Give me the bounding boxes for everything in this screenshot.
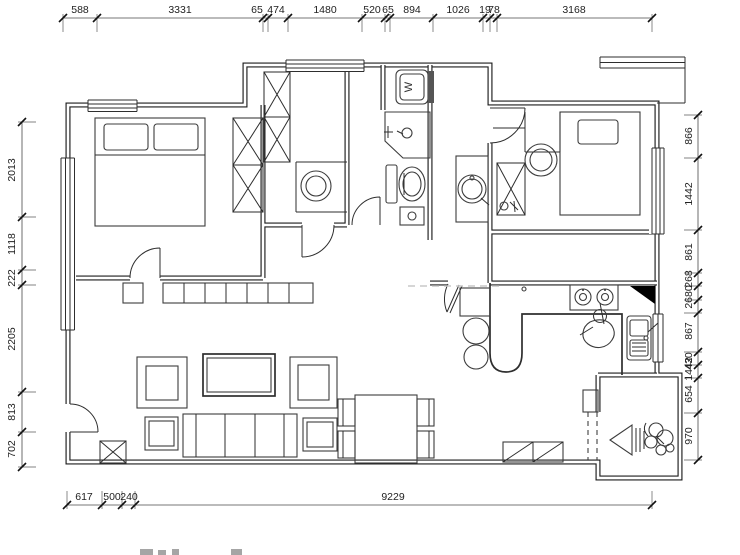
bay-window-top-right [600,57,685,103]
dimension-label: 861 [684,243,695,261]
window-study-top [286,58,364,72]
study-desk-chair-icon [301,171,331,201]
dimension-label: 617 [75,492,93,503]
dining-table-icon [355,395,417,463]
dimension-label: 1480 [313,5,336,16]
bathroom-sink-counter-icon [384,112,430,158]
dining-chair-icon [417,399,434,426]
washer-panel [428,71,434,103]
dimension-label: 2013 [7,158,18,181]
hall-basin-icon [456,156,489,222]
dimension-label: 1026 [446,5,469,16]
bedroom2-bed [560,112,640,215]
fridge-icon [460,288,490,316]
window-bedroom2-right [649,148,665,234]
dimension-label: 9229 [381,492,404,503]
bedroom1-door-arc [130,248,160,278]
dimension-label: 1442 [684,357,695,380]
dimension-label: 970 [684,427,695,445]
floorplan-canvas: W [0,0,740,555]
dimension-label: 588 [71,5,89,16]
pillow [154,124,198,150]
dimension-label: 500 [103,492,121,503]
dimension-label: 2680 [684,285,695,308]
bedroom2-door-arc [490,108,525,143]
dimension-label: 867 [684,322,695,340]
side-table-icon [303,418,337,451]
dimension-label: 240 [120,492,138,503]
pillow [104,124,148,150]
coffee-table-icon [203,354,275,396]
armchair-icon [290,357,337,408]
bedroom2-wardrobe-icon [497,163,525,215]
dimension-label: 654 [684,385,695,403]
cutoff-mark [172,549,179,555]
window-bedroom1-top [88,98,137,112]
bathroom-door-arc [352,197,380,225]
vent-pennant-icon [610,425,644,455]
cutoff-mark [140,549,153,555]
stove-icon [570,285,618,310]
interior-walls [68,65,657,412]
dimension-label: 474 [267,5,285,16]
window-kitchen-right [650,314,664,362]
dimension-label: 702 [7,440,18,458]
dimension-label: 3168 [562,5,585,16]
dimension-label: 866 [684,127,695,145]
window-left-wall [59,158,76,330]
armchair-icon [137,357,187,408]
dimension-label: 65 [382,5,394,16]
study-door-arc [302,225,334,257]
pillow [578,120,618,144]
dimension-label: 2205 [7,327,18,350]
bedroom1-bed [95,118,205,226]
dimension-label: 78 [488,5,500,16]
cutoff-mark [231,549,242,555]
kitchen-counter [490,283,622,375]
entry-door-arc [70,404,98,432]
floorplan-drawing: W [0,0,740,555]
door-stop [522,287,526,291]
study-wardrobe-icon [264,72,290,162]
dimension-label: 520 [363,5,381,16]
dining-chair-icon [417,431,434,458]
side-table-icon [145,417,178,450]
bathroom-pedestal-icon [400,207,424,225]
bedroom2-desk [493,112,560,152]
study-desk [296,162,347,212]
dimension-lines [18,14,702,509]
bar-stool-icon [463,318,489,344]
dimension-label: 894 [403,5,421,16]
dimension-label: 65 [251,5,263,16]
dimension-label: 1118 [7,233,18,255]
plant-icon [644,423,674,455]
washing-machine-icon: W [396,70,434,104]
kitchen-door-leaf [444,284,462,313]
dimension-label: 222 [7,269,18,287]
cutoff-mark [158,550,166,555]
dimension-label: 813 [7,403,18,421]
dining-chair-icon [338,399,355,426]
sofa-icon [183,414,297,457]
dimension-label: 3331 [168,5,191,16]
washer-label: W [403,81,415,92]
dining-chair-icon [338,431,355,458]
bedroom1-wardrobe-icon [233,118,263,212]
dimension-label: 1442 [684,182,695,205]
bar-stool-icon [464,345,488,369]
bedroom2-desk-chair-icon [525,144,557,176]
tv-cabinet-icon [123,283,313,303]
shoe-cabinet-icon [503,442,563,462]
corner-fill-triangle [630,286,655,304]
toilet-icon [386,165,425,203]
